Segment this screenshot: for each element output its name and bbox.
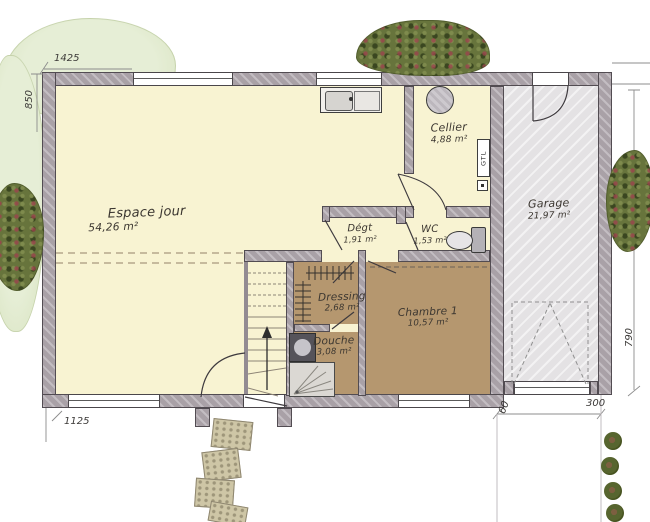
- wall-dressing-douche: [294, 324, 330, 332]
- wall-garage-bottom-left: [504, 381, 514, 395]
- window-top-living: [133, 72, 233, 86]
- meter-dot: [481, 184, 484, 187]
- porch-post-right: [277, 408, 292, 427]
- room-label-degt: Dégt 1,91 m²: [332, 222, 389, 245]
- room-label-chambre: Chambre 1 10,57 m²: [386, 305, 471, 330]
- water-heater: [426, 86, 454, 114]
- tree-right: [606, 150, 650, 252]
- bush-top: [356, 20, 490, 76]
- wall-night-top-a: [244, 250, 322, 262]
- stepping-stone: [211, 418, 254, 451]
- stepping-stone: [208, 501, 249, 522]
- wall-left: [42, 72, 56, 408]
- dimension-top-left: 1425: [54, 53, 79, 64]
- kitchen-sink-counter: [320, 87, 382, 113]
- wall-stair-left: [244, 262, 248, 396]
- window-bottom-chambre: [398, 394, 470, 408]
- stepping-stone: [201, 448, 241, 482]
- room-garage-floor: [504, 86, 598, 382]
- garage-door-opening: [514, 381, 590, 395]
- room-area: 1,91 m²: [332, 234, 388, 246]
- small-bush: [604, 432, 622, 450]
- small-bush: [601, 457, 619, 475]
- sink-bowl: [325, 91, 353, 111]
- window-kitchen: [316, 72, 382, 86]
- wall-hall-top-b: [446, 206, 490, 218]
- wall-garage-divider: [490, 86, 504, 395]
- electric-meter: [477, 180, 488, 191]
- wc-toilet-tank: [471, 227, 486, 253]
- room-label-douche: Douche 3,08 m²: [302, 334, 367, 359]
- room-label-espace-jour: Espace jour 54,26 m²: [88, 203, 219, 235]
- window-bottom-living: [68, 394, 160, 408]
- wall-kitchen-cellier: [404, 86, 414, 174]
- wall-right-garage: [598, 72, 612, 395]
- wall-degt-wc-stub: [396, 206, 406, 224]
- wall-garage-bottom-right: [590, 381, 598, 395]
- dimension-garage-offset: 60: [497, 400, 512, 416]
- gtl-box: GTL: [477, 139, 490, 177]
- shower-tray: [289, 362, 335, 397]
- room-label-dressing: Dressing 2,68 m²: [306, 290, 379, 315]
- dimension-garage-width: 300: [586, 398, 605, 409]
- small-bush: [604, 482, 622, 500]
- dimension-right: 790: [624, 328, 635, 347]
- dimension-bottom-left: 1125: [64, 416, 89, 427]
- small-bush: [606, 504, 624, 522]
- sink-faucet: [349, 97, 353, 101]
- wall-douche-chambre: [358, 250, 366, 396]
- room-area: 1,53 m²: [404, 235, 456, 246]
- gtl-label: GTL: [478, 140, 489, 176]
- room-label-cellier: Cellier 4,88 m²: [416, 121, 483, 147]
- wall-degt-left-stub: [322, 206, 330, 222]
- sink-drainer: [354, 91, 380, 111]
- floor-plan: GTL E: [0, 0, 650, 522]
- driveway-lines: [497, 395, 601, 522]
- room-label-wc: WC 1,53 m²: [404, 223, 457, 246]
- entrance-door-opening: [243, 394, 285, 408]
- room-label-garage: Garage 21,97 m²: [512, 197, 587, 223]
- garage-side-door-opening: [532, 72, 569, 86]
- porch-post-left: [195, 408, 210, 427]
- dimension-left: 850: [24, 90, 35, 109]
